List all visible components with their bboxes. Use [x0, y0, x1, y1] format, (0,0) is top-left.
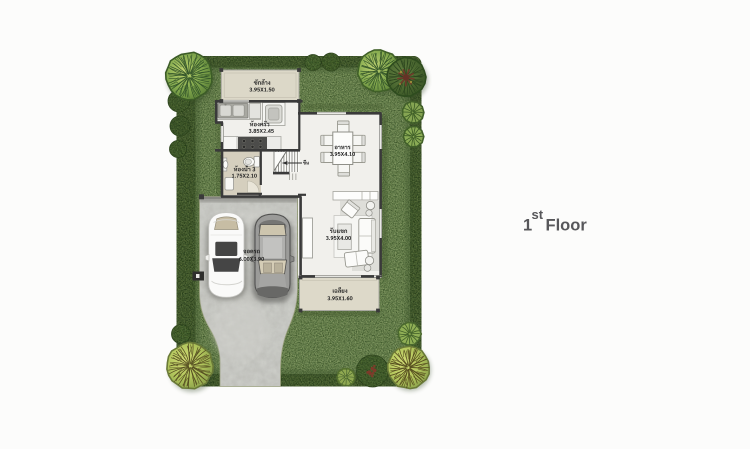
svg-text:Floor: Floor — [546, 217, 588, 235]
svg-text:st: st — [532, 207, 544, 222]
